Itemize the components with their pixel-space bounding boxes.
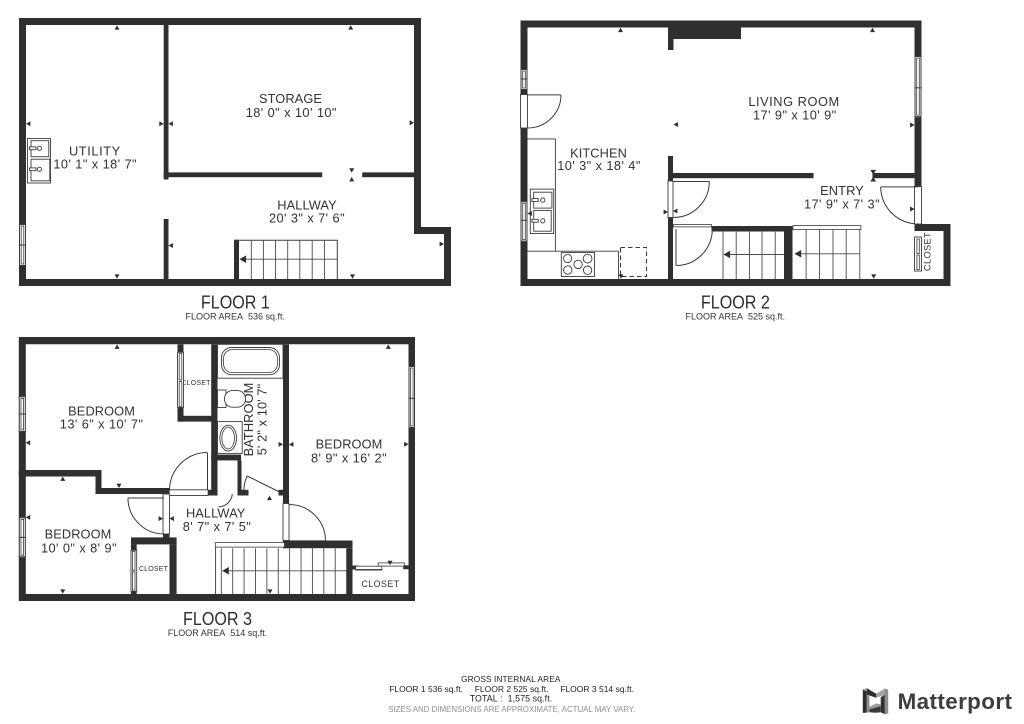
- svg-text:Matterport: Matterport: [898, 689, 1013, 714]
- svg-text:SIZES AND DIMENSIONS ARE APPRO: SIZES AND DIMENSIONS ARE APPROXIMATE, AC…: [388, 705, 635, 714]
- svg-text:FLOOR AREA 514 sq.ft.: FLOOR AREA 514 sq.ft.: [168, 628, 268, 638]
- svg-text:13' 6" x 10' 7": 13' 6" x 10' 7": [60, 416, 144, 431]
- svg-text:FLOOR 1: FLOOR 1: [201, 292, 270, 313]
- svg-text:8' 9" x 16' 2": 8' 9" x 16' 2": [311, 450, 387, 465]
- svg-text:TOTAL : 1,575 sq.ft.: TOTAL : 1,575 sq.ft.: [470, 693, 553, 703]
- svg-text:FLOOR 3: FLOOR 3: [183, 608, 252, 629]
- svg-text:CLOSET: CLOSET: [139, 566, 169, 573]
- svg-text:CLOSET: CLOSET: [181, 380, 211, 387]
- svg-text:FLOOR AREA 525 sq.ft.: FLOOR AREA 525 sq.ft.: [686, 312, 786, 322]
- svg-text:FLOOR 1 536 sq.ft. FLOOR 2: FLOOR 1 536 sq.ft. FLOOR 2 525 sq.ft. FL…: [389, 684, 634, 694]
- svg-text:17' 9" x 10' 9": 17' 9" x 10' 9": [753, 107, 837, 122]
- svg-text:10' 3" x 18' 4": 10' 3" x 18' 4": [557, 158, 641, 173]
- svg-text:20' 3" x 7' 6": 20' 3" x 7' 6": [269, 211, 345, 226]
- svg-text:CLOSET: CLOSET: [923, 232, 933, 271]
- svg-text:FLOOR AREA 536 sq.ft.: FLOOR AREA 536 sq.ft.: [186, 312, 286, 322]
- svg-text:CLOSET: CLOSET: [361, 579, 399, 589]
- svg-text:10' 1" x 18' 7": 10' 1" x 18' 7": [53, 156, 137, 171]
- svg-text:STORAGE: STORAGE: [259, 91, 322, 106]
- svg-text:HALLWAY: HALLWAY: [186, 505, 246, 520]
- svg-text:17' 9" x 7' 3": 17' 9" x 7' 3": [804, 197, 880, 212]
- svg-text:5' 2" x 10' 7": 5' 2" x 10' 7": [255, 384, 270, 456]
- svg-text:18' 0" x 10' 10": 18' 0" x 10' 10": [246, 105, 337, 120]
- svg-text:BEDROOM: BEDROOM: [316, 436, 383, 451]
- svg-text:GROSS INTERNAL AREA: GROSS INTERNAL AREA: [461, 674, 561, 684]
- svg-text:FLOOR 2: FLOOR 2: [701, 292, 770, 313]
- svg-text:8' 7" x 7' 5": 8' 7" x 7' 5": [183, 519, 252, 534]
- svg-text:10' 0" x 8' 9": 10' 0" x 8' 9": [41, 540, 117, 555]
